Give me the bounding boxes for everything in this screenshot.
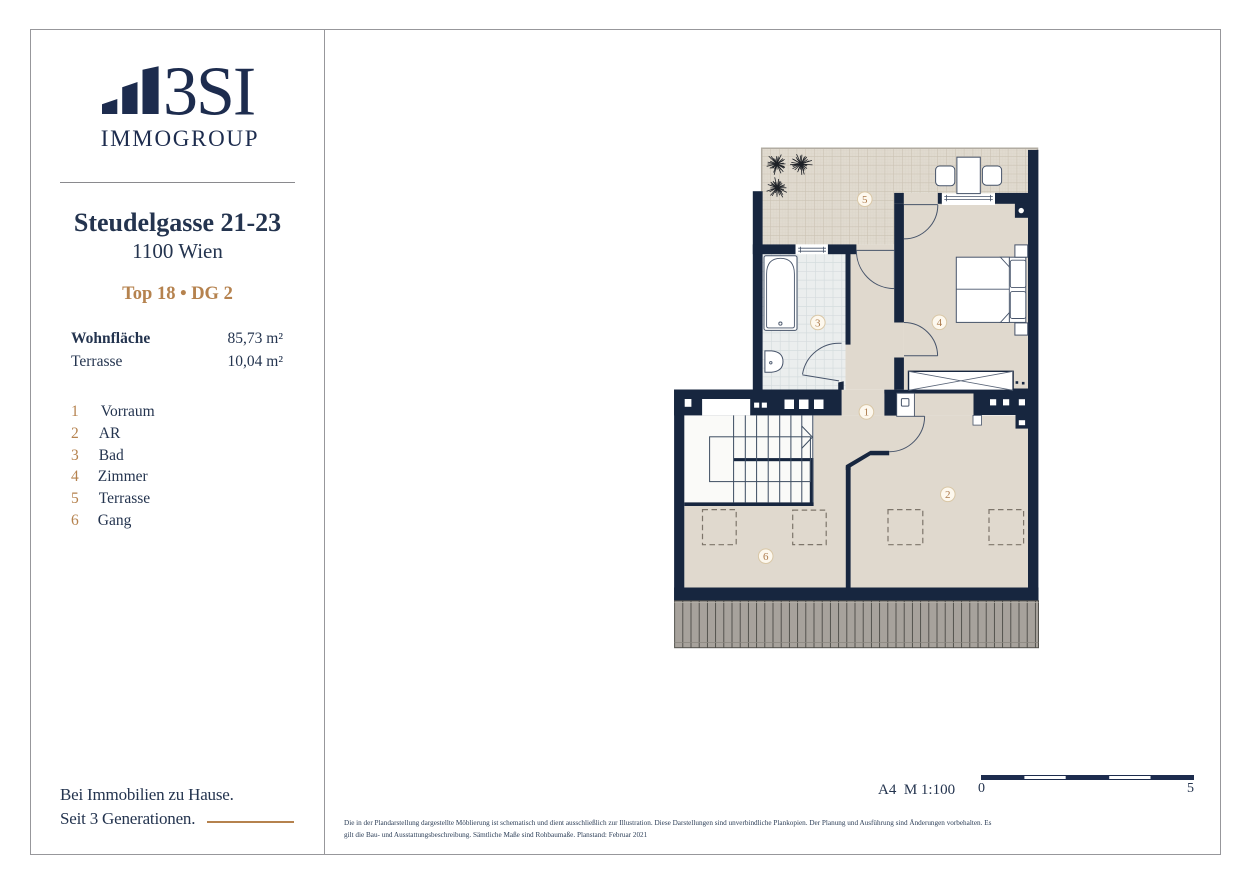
svg-text:IMMOGROUP: IMMOGROUP: [101, 126, 259, 151]
svg-text:0: 0: [978, 781, 985, 796]
svg-text:2: 2: [945, 489, 951, 501]
svg-text:6: 6: [763, 551, 769, 563]
svg-text:3SI: 3SI: [163, 55, 254, 131]
svg-text:4: 4: [937, 317, 943, 329]
svg-text:3: 3: [815, 317, 821, 329]
svg-text:5: 5: [1187, 781, 1194, 796]
svg-text:5: 5: [862, 194, 868, 206]
svg-text:1: 1: [864, 407, 870, 419]
